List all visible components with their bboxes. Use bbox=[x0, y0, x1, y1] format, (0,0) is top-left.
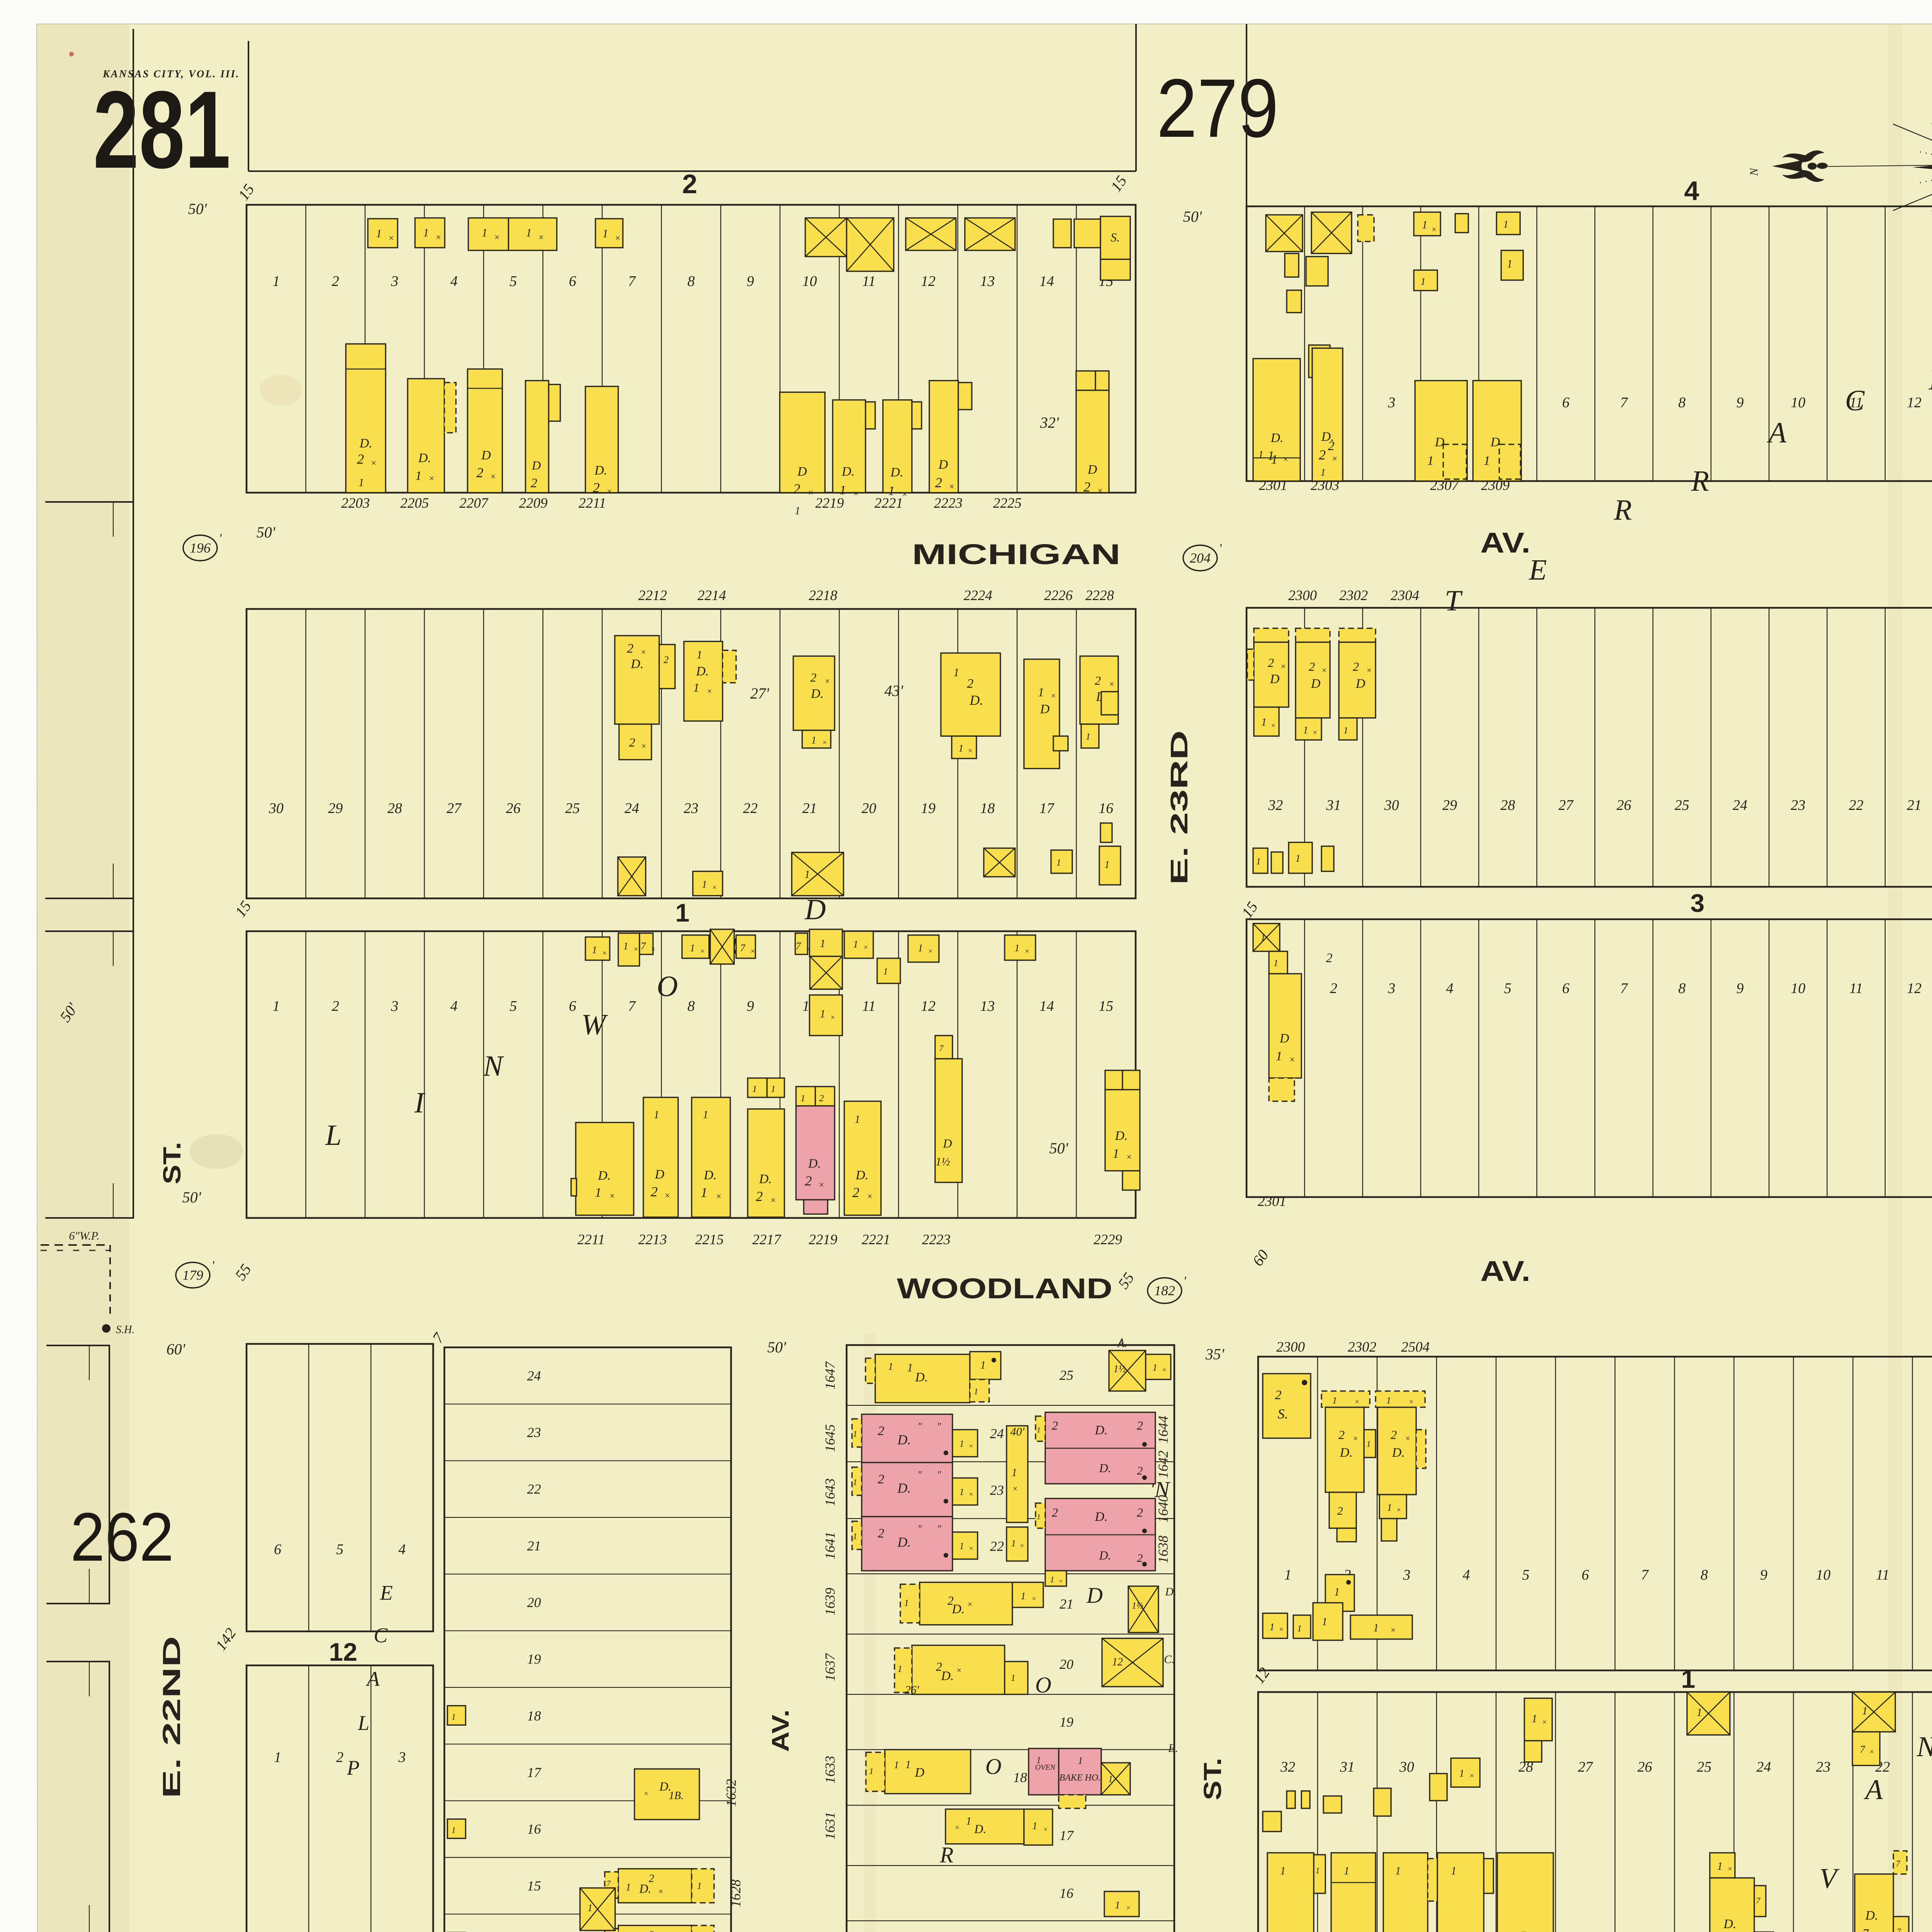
svg-text:ST.: ST. bbox=[158, 1142, 186, 1184]
svg-text:1: 1 bbox=[1011, 1539, 1016, 1549]
svg-text:2: 2 bbox=[332, 273, 339, 289]
svg-text:1: 1 bbox=[1427, 454, 1434, 468]
svg-text:×: × bbox=[1332, 454, 1338, 464]
svg-text:2: 2 bbox=[357, 451, 364, 467]
svg-text:×: × bbox=[1012, 1484, 1018, 1493]
svg-text:AV.: AV. bbox=[1480, 1255, 1531, 1287]
svg-text:2212: 2212 bbox=[638, 588, 667, 604]
svg-text:2: 2 bbox=[805, 1173, 812, 1189]
svg-text:″: ″ bbox=[918, 1421, 922, 1432]
svg-text:2219: 2219 bbox=[815, 495, 844, 511]
svg-text:': ' bbox=[1219, 541, 1222, 556]
svg-text:×: × bbox=[1727, 1865, 1733, 1873]
svg-text:50': 50' bbox=[257, 524, 276, 541]
svg-text:×: × bbox=[1431, 224, 1437, 234]
svg-text:1: 1 bbox=[1451, 1865, 1456, 1877]
svg-text:2: 2 bbox=[1052, 1505, 1058, 1519]
svg-text:×: × bbox=[969, 1490, 973, 1498]
svg-text:1: 1 bbox=[905, 1759, 911, 1771]
svg-text:1: 1 bbox=[1697, 1707, 1702, 1719]
svg-text:1: 1 bbox=[1038, 685, 1044, 699]
svg-text:C.: C. bbox=[1164, 1653, 1175, 1666]
svg-text:18: 18 bbox=[980, 800, 995, 816]
svg-text:1: 1 bbox=[853, 939, 858, 950]
svg-text:20: 20 bbox=[527, 1595, 541, 1610]
svg-text:×: × bbox=[1059, 1578, 1063, 1585]
svg-text:1: 1 bbox=[1011, 1673, 1015, 1683]
svg-text:27: 27 bbox=[1578, 1759, 1594, 1775]
svg-text:26': 26' bbox=[905, 1684, 919, 1696]
svg-text:1: 1 bbox=[1297, 1624, 1302, 1634]
svg-text:1: 1 bbox=[1108, 1774, 1113, 1784]
svg-text:8: 8 bbox=[687, 998, 695, 1014]
svg-text:21: 21 bbox=[527, 1538, 541, 1553]
svg-text:1: 1 bbox=[907, 1361, 913, 1374]
svg-text:1: 1 bbox=[1386, 1396, 1391, 1406]
svg-text:1: 1 bbox=[1422, 219, 1427, 231]
svg-text:1: 1 bbox=[855, 1114, 860, 1126]
svg-text:7: 7 bbox=[628, 273, 636, 289]
svg-text:2: 2 bbox=[1137, 1418, 1143, 1432]
svg-text:×: × bbox=[1032, 1595, 1036, 1602]
svg-text:1B.: 1B. bbox=[669, 1790, 684, 1802]
svg-text:1: 1 bbox=[1271, 452, 1278, 467]
svg-text:10: 10 bbox=[1791, 980, 1805, 997]
svg-text:23: 23 bbox=[1816, 1759, 1830, 1775]
svg-text:3: 3 bbox=[391, 998, 398, 1014]
svg-text:×: × bbox=[968, 747, 973, 755]
svg-text:1628: 1628 bbox=[728, 1879, 743, 1907]
svg-text:1: 1 bbox=[1681, 1665, 1696, 1693]
svg-text:D.: D. bbox=[1270, 431, 1283, 445]
svg-text:S.H.: S.H. bbox=[116, 1324, 134, 1336]
svg-text:1: 1 bbox=[1395, 1865, 1401, 1877]
svg-text:': ' bbox=[219, 531, 222, 546]
svg-text:1: 1 bbox=[452, 1825, 456, 1835]
svg-text:1642: 1642 bbox=[1155, 1451, 1171, 1478]
svg-text:D.: D. bbox=[974, 1822, 986, 1836]
svg-text:12: 12 bbox=[921, 998, 935, 1014]
svg-text:WOODLAND: WOODLAND bbox=[897, 1272, 1112, 1304]
svg-text:24: 24 bbox=[527, 1368, 541, 1383]
svg-text:2: 2 bbox=[332, 998, 339, 1014]
svg-text:D.: D. bbox=[1094, 1423, 1107, 1437]
svg-text:D.: D. bbox=[639, 1881, 651, 1895]
svg-text:2302: 2302 bbox=[1339, 588, 1368, 604]
svg-text:8: 8 bbox=[1678, 980, 1685, 997]
svg-text:1: 1 bbox=[526, 226, 532, 239]
svg-text:281: 281 bbox=[93, 68, 231, 191]
svg-text:×: × bbox=[956, 1665, 962, 1675]
svg-text:1: 1 bbox=[1258, 449, 1264, 461]
svg-text:D.: D. bbox=[897, 1480, 911, 1496]
svg-text:1: 1 bbox=[752, 1084, 757, 1094]
svg-text:6: 6 bbox=[274, 1541, 281, 1558]
svg-text:15: 15 bbox=[1099, 998, 1113, 1014]
svg-text:×: × bbox=[825, 676, 830, 686]
svg-text:6: 6 bbox=[1562, 980, 1570, 997]
svg-text:1: 1 bbox=[795, 505, 800, 517]
svg-text:×: × bbox=[388, 233, 394, 243]
svg-text:1: 1 bbox=[1015, 942, 1020, 954]
svg-text:×: × bbox=[494, 233, 500, 243]
svg-text:7: 7 bbox=[1897, 1927, 1901, 1932]
svg-text:D.: D. bbox=[1099, 1548, 1111, 1562]
svg-text:1: 1 bbox=[1367, 1439, 1371, 1449]
svg-text:1: 1 bbox=[820, 938, 825, 950]
svg-text:29: 29 bbox=[1442, 797, 1457, 813]
svg-text:1: 1 bbox=[697, 648, 702, 661]
svg-text:1643: 1643 bbox=[822, 1478, 838, 1506]
svg-text:4: 4 bbox=[450, 273, 457, 289]
svg-text:5: 5 bbox=[1504, 980, 1512, 997]
svg-text:1: 1 bbox=[1503, 219, 1509, 230]
svg-text:×: × bbox=[490, 472, 496, 482]
svg-text:7: 7 bbox=[607, 1879, 611, 1888]
svg-text:23: 23 bbox=[990, 1483, 1004, 1498]
svg-text:19: 19 bbox=[527, 1651, 541, 1667]
svg-text:2504: 2504 bbox=[1401, 1339, 1430, 1355]
svg-text:1: 1 bbox=[1303, 724, 1308, 736]
svg-text:2301: 2301 bbox=[1259, 478, 1287, 493]
svg-text:D: D bbox=[797, 464, 807, 479]
svg-text:1: 1 bbox=[801, 1094, 805, 1104]
svg-text:1: 1 bbox=[272, 998, 280, 1014]
svg-text:2224: 2224 bbox=[964, 588, 992, 604]
svg-text:2218: 2218 bbox=[809, 588, 838, 604]
svg-text:12: 12 bbox=[1112, 1656, 1123, 1668]
svg-text:×: × bbox=[1353, 1434, 1359, 1443]
svg-text:2: 2 bbox=[1353, 660, 1359, 673]
svg-text:8: 8 bbox=[687, 273, 695, 289]
svg-text:204: 204 bbox=[1190, 550, 1211, 566]
svg-text:2: 2 bbox=[1326, 951, 1333, 965]
svg-text:2300: 2300 bbox=[1276, 1339, 1305, 1355]
svg-text:11: 11 bbox=[862, 273, 876, 289]
svg-text:2215: 2215 bbox=[695, 1232, 724, 1248]
svg-text:D.: D. bbox=[696, 664, 709, 679]
svg-text:1: 1 bbox=[1261, 932, 1266, 943]
svg-text:2221: 2221 bbox=[862, 1232, 890, 1248]
svg-text:7: 7 bbox=[1641, 1567, 1649, 1583]
svg-text:2: 2 bbox=[651, 1184, 658, 1199]
svg-text:1: 1 bbox=[1284, 1567, 1292, 1583]
svg-text:7: 7 bbox=[628, 998, 636, 1014]
svg-text:2: 2 bbox=[1330, 980, 1337, 997]
svg-text:W: W bbox=[581, 1009, 608, 1041]
svg-text:21: 21 bbox=[802, 800, 817, 816]
svg-text:P: P bbox=[347, 1756, 360, 1779]
svg-text:9: 9 bbox=[747, 273, 754, 289]
svg-text:R: R bbox=[1691, 465, 1709, 497]
svg-text:×: × bbox=[1354, 1398, 1360, 1406]
svg-text:×: × bbox=[1126, 1904, 1131, 1912]
svg-text:2: 2 bbox=[1275, 1388, 1282, 1402]
svg-text:×: × bbox=[867, 1192, 873, 1202]
svg-text:6: 6 bbox=[569, 273, 576, 289]
svg-text:O: O bbox=[1035, 1672, 1051, 1697]
svg-text:2: 2 bbox=[878, 1472, 884, 1486]
svg-text:2301: 2301 bbox=[1258, 1194, 1286, 1209]
svg-text:D: D bbox=[1086, 1583, 1103, 1608]
svg-text:25: 25 bbox=[565, 800, 580, 816]
svg-text:11: 11 bbox=[862, 998, 876, 1014]
svg-text:E: E bbox=[380, 1581, 393, 1604]
svg-text:1: 1 bbox=[626, 1881, 631, 1893]
svg-text:D.: D. bbox=[940, 1669, 954, 1683]
svg-text:28: 28 bbox=[388, 800, 402, 816]
svg-text:1: 1 bbox=[675, 898, 690, 927]
svg-text:18: 18 bbox=[1013, 1770, 1027, 1785]
svg-text:179: 179 bbox=[182, 1267, 203, 1283]
svg-text:21: 21 bbox=[1907, 797, 1922, 813]
svg-text:×: × bbox=[633, 945, 639, 954]
svg-text:1: 1 bbox=[1086, 732, 1090, 742]
svg-text:×: × bbox=[538, 233, 544, 243]
svg-text:×: × bbox=[641, 647, 646, 657]
svg-text:10: 10 bbox=[1816, 1567, 1830, 1583]
svg-text:D.: D. bbox=[897, 1534, 911, 1550]
svg-text:8: 8 bbox=[1678, 395, 1685, 411]
svg-text:9: 9 bbox=[1760, 1567, 1767, 1583]
svg-text:1: 1 bbox=[894, 1759, 899, 1770]
svg-text:2: 2 bbox=[649, 1929, 654, 1932]
svg-text:2228: 2228 bbox=[1085, 588, 1114, 604]
svg-text:31: 31 bbox=[1340, 1759, 1355, 1775]
svg-text:1: 1 bbox=[1717, 1861, 1723, 1872]
svg-text:1631: 1631 bbox=[822, 1812, 838, 1840]
svg-text:×: × bbox=[614, 233, 621, 243]
svg-text:1: 1 bbox=[954, 666, 959, 679]
svg-text:3: 3 bbox=[1388, 395, 1395, 411]
svg-text:1: 1 bbox=[1113, 1146, 1119, 1161]
svg-text:D.: D. bbox=[759, 1172, 772, 1186]
svg-text:S.: S. bbox=[1278, 1406, 1288, 1422]
svg-text:1: 1 bbox=[1012, 1467, 1017, 1479]
svg-text:B.: B. bbox=[1168, 1742, 1178, 1755]
svg-text:1: 1 bbox=[853, 1531, 857, 1541]
svg-text:×: × bbox=[651, 945, 656, 954]
svg-text:50': 50' bbox=[182, 1189, 202, 1206]
svg-text:D.: D. bbox=[890, 465, 903, 480]
svg-text:2300: 2300 bbox=[1288, 588, 1317, 604]
svg-text:1: 1 bbox=[1296, 853, 1301, 864]
svg-text:262: 262 bbox=[70, 1498, 174, 1575]
svg-text:×: × bbox=[1279, 1625, 1284, 1634]
svg-text:1½: 1½ bbox=[1114, 1363, 1126, 1374]
svg-text:11: 11 bbox=[1876, 1567, 1889, 1583]
svg-text:22: 22 bbox=[1849, 797, 1864, 813]
svg-text:D: D bbox=[531, 458, 541, 472]
svg-text:1: 1 bbox=[959, 1487, 964, 1497]
svg-text:×: × bbox=[1281, 662, 1286, 671]
svg-text:C: C bbox=[1845, 384, 1865, 417]
svg-text:4: 4 bbox=[1446, 980, 1453, 997]
svg-text:1: 1 bbox=[1153, 1363, 1157, 1373]
svg-text:17: 17 bbox=[1039, 800, 1055, 816]
svg-text:2: 2 bbox=[1083, 479, 1090, 495]
svg-text:1: 1 bbox=[274, 1749, 281, 1765]
svg-text:1: 1 bbox=[959, 1541, 964, 1551]
svg-text:28: 28 bbox=[1500, 797, 1515, 813]
svg-text:30: 30 bbox=[1399, 1759, 1414, 1775]
svg-text:MICHIGAN: MICHIGAN bbox=[912, 538, 1121, 570]
svg-text:BAKE HO.: BAKE HO. bbox=[1060, 1773, 1101, 1783]
svg-text:1637: 1637 bbox=[822, 1653, 838, 1681]
svg-text:D.: D. bbox=[594, 463, 607, 478]
svg-text:1: 1 bbox=[1032, 1820, 1037, 1832]
svg-text:1: 1 bbox=[1078, 1755, 1083, 1766]
svg-text:1: 1 bbox=[904, 1598, 909, 1608]
svg-text:S.: S. bbox=[1111, 230, 1120, 244]
svg-text:20: 20 bbox=[1060, 1656, 1073, 1672]
svg-text:1: 1 bbox=[959, 743, 964, 754]
svg-text:×: × bbox=[1869, 1748, 1874, 1756]
svg-text:2217: 2217 bbox=[752, 1232, 782, 1248]
svg-text:13: 13 bbox=[980, 998, 995, 1014]
svg-text:D: D bbox=[1087, 463, 1097, 477]
svg-text:D.: D. bbox=[630, 657, 643, 671]
svg-text:1: 1 bbox=[452, 1712, 456, 1721]
svg-text:1: 1 bbox=[898, 1664, 902, 1674]
svg-text:D.: D. bbox=[841, 464, 854, 479]
svg-text:×: × bbox=[1097, 486, 1103, 496]
svg-text:3: 3 bbox=[1388, 980, 1395, 997]
svg-text:D: D bbox=[1279, 1031, 1289, 1046]
svg-text:2: 2 bbox=[336, 1749, 344, 1765]
svg-text:N: N bbox=[1748, 167, 1760, 176]
svg-text:2: 2 bbox=[531, 476, 537, 490]
svg-text:D: D bbox=[655, 1167, 665, 1182]
svg-text:7: 7 bbox=[1862, 1926, 1869, 1932]
svg-text:1: 1 bbox=[918, 942, 923, 954]
svg-text:17: 17 bbox=[527, 1765, 542, 1780]
svg-text:D.: D. bbox=[1165, 1585, 1176, 1598]
svg-text:12: 12 bbox=[1907, 980, 1922, 997]
svg-text:D: D bbox=[1270, 672, 1280, 686]
svg-text:18: 18 bbox=[527, 1708, 541, 1723]
svg-text:1: 1 bbox=[697, 1881, 702, 1891]
svg-text:19: 19 bbox=[1060, 1714, 1073, 1730]
svg-text:×: × bbox=[602, 949, 607, 957]
svg-text:13: 13 bbox=[980, 273, 995, 289]
svg-text:L: L bbox=[357, 1711, 369, 1735]
svg-text:×: × bbox=[371, 458, 377, 468]
svg-text:5: 5 bbox=[1522, 1567, 1529, 1583]
svg-text:×: × bbox=[429, 474, 435, 484]
svg-text:2: 2 bbox=[1337, 1505, 1343, 1517]
svg-text:D.: D. bbox=[1865, 1908, 1878, 1923]
svg-text:32: 32 bbox=[1280, 1759, 1295, 1775]
svg-text:1: 1 bbox=[376, 227, 382, 240]
svg-text:1: 1 bbox=[693, 680, 699, 694]
svg-text:9: 9 bbox=[1736, 980, 1744, 997]
svg-text:': ' bbox=[211, 1259, 214, 1273]
svg-text:1: 1 bbox=[602, 227, 608, 240]
svg-text:×: × bbox=[1043, 1825, 1048, 1833]
svg-text:2: 2 bbox=[593, 480, 600, 495]
svg-text:1633: 1633 bbox=[822, 1756, 838, 1784]
svg-text:2: 2 bbox=[819, 1094, 824, 1104]
svg-text:×: × bbox=[700, 947, 705, 956]
svg-text:': ' bbox=[1183, 1274, 1186, 1288]
svg-text:4: 4 bbox=[450, 998, 457, 1014]
svg-text:2214: 2214 bbox=[697, 588, 726, 604]
svg-text:1647: 1647 bbox=[822, 1361, 838, 1389]
svg-text:6″W.P.: 6″W.P. bbox=[69, 1230, 99, 1242]
svg-text:×: × bbox=[969, 1442, 973, 1450]
svg-text:1: 1 bbox=[1276, 1049, 1282, 1063]
svg-text:26: 26 bbox=[1638, 1759, 1652, 1775]
svg-text:7: 7 bbox=[1860, 1744, 1866, 1755]
svg-text:1: 1 bbox=[1321, 467, 1326, 478]
svg-text:×: × bbox=[770, 1196, 776, 1206]
svg-text:1: 1 bbox=[1261, 716, 1267, 728]
svg-text:A: A bbox=[366, 1667, 380, 1690]
svg-text:1: 1 bbox=[888, 1361, 893, 1372]
svg-text:D.: D. bbox=[808, 1156, 821, 1171]
svg-text:1: 1 bbox=[853, 1429, 857, 1439]
svg-text:20: 20 bbox=[862, 800, 876, 816]
svg-text:9: 9 bbox=[1736, 395, 1744, 411]
svg-text:×: × bbox=[1469, 1772, 1475, 1780]
svg-text:1: 1 bbox=[1322, 1616, 1327, 1628]
svg-text:1: 1 bbox=[690, 942, 695, 954]
svg-text:2209: 2209 bbox=[519, 495, 548, 511]
svg-text:×: × bbox=[808, 488, 814, 498]
svg-text:1: 1 bbox=[1050, 1575, 1054, 1584]
svg-text:24: 24 bbox=[1757, 1759, 1771, 1775]
svg-text:14: 14 bbox=[1039, 273, 1054, 289]
svg-text:N: N bbox=[1916, 1731, 1932, 1763]
svg-text:2229: 2229 bbox=[1094, 1232, 1122, 1248]
svg-text:7: 7 bbox=[1896, 1859, 1901, 1868]
svg-text:1: 1 bbox=[1274, 958, 1278, 968]
svg-text:D.: D. bbox=[1723, 1917, 1736, 1931]
svg-text:2: 2 bbox=[793, 481, 800, 497]
svg-text:2: 2 bbox=[967, 677, 974, 691]
svg-text:1: 1 bbox=[702, 879, 707, 890]
svg-text:2309: 2309 bbox=[1481, 478, 1510, 493]
svg-text:24: 24 bbox=[1733, 797, 1747, 813]
svg-text:×: × bbox=[435, 233, 441, 243]
svg-text:1632: 1632 bbox=[723, 1779, 739, 1807]
svg-text:6: 6 bbox=[1562, 395, 1570, 411]
svg-text:D.: D. bbox=[703, 1168, 716, 1182]
svg-text:2: 2 bbox=[1391, 1428, 1397, 1442]
svg-text:2: 2 bbox=[682, 169, 697, 199]
svg-text:×: × bbox=[1289, 1055, 1295, 1065]
svg-text:1: 1 bbox=[771, 1084, 776, 1094]
svg-text:1: 1 bbox=[415, 469, 422, 483]
svg-text:25: 25 bbox=[1675, 797, 1689, 813]
svg-text:D: D bbox=[1311, 677, 1321, 691]
svg-text:2207: 2207 bbox=[459, 495, 489, 511]
svg-text:182: 182 bbox=[1154, 1283, 1175, 1298]
svg-text:×: × bbox=[1366, 665, 1372, 675]
svg-text:30: 30 bbox=[269, 800, 284, 816]
svg-text:×: × bbox=[1020, 1542, 1024, 1549]
svg-text:7: 7 bbox=[641, 940, 646, 952]
svg-text:D.: D. bbox=[969, 692, 983, 708]
svg-text:50': 50' bbox=[767, 1338, 787, 1356]
svg-text:22: 22 bbox=[990, 1539, 1004, 1554]
svg-text:A: A bbox=[1767, 417, 1787, 449]
svg-text:×: × bbox=[822, 738, 827, 747]
svg-text:25: 25 bbox=[1697, 1759, 1712, 1775]
svg-text:1: 1 bbox=[1021, 1590, 1026, 1602]
svg-text:×: × bbox=[928, 947, 933, 956]
